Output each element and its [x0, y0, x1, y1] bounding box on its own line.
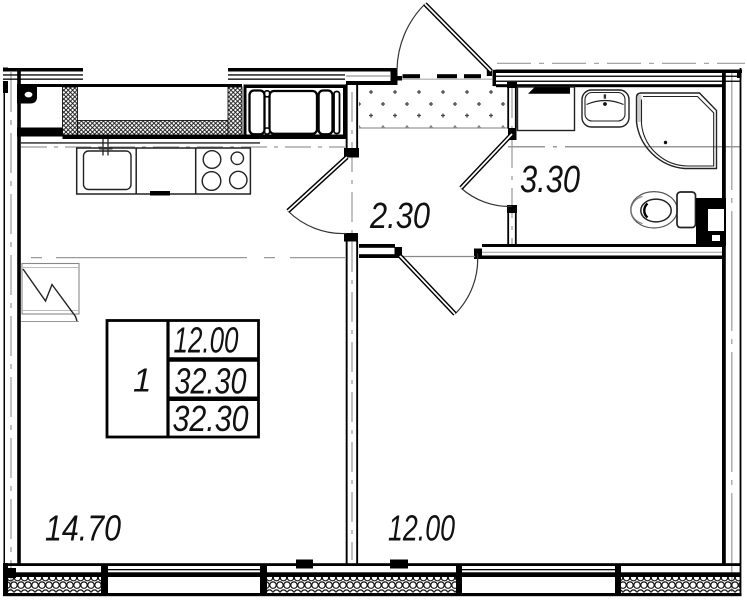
- svg-text:14.70: 14.70: [45, 508, 121, 549]
- svg-text:3.30: 3.30: [520, 159, 580, 201]
- svg-text:12.00: 12.00: [388, 508, 455, 549]
- svg-text:1: 1: [133, 362, 151, 399]
- svg-text:32.30: 32.30: [173, 398, 249, 439]
- svg-text:12.00: 12.00: [174, 320, 239, 361]
- svg-text:32.30: 32.30: [175, 361, 247, 402]
- svg-text:2.30: 2.30: [369, 195, 430, 236]
